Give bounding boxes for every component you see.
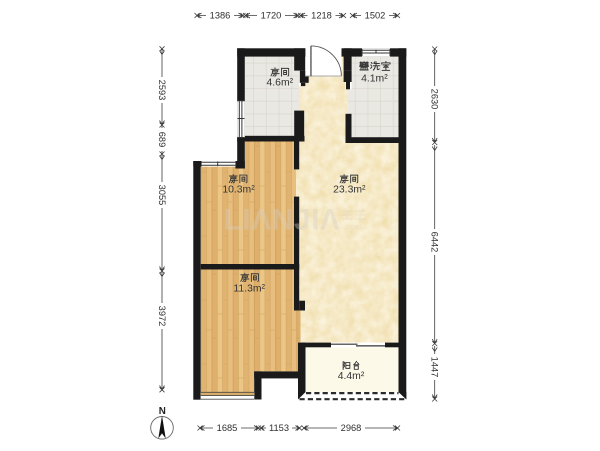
svg-text:4.1m²: 4.1m² [361, 73, 388, 84]
svg-text:N: N [159, 406, 166, 417]
svg-text:23.3m²: 23.3m² [333, 184, 366, 195]
svg-text:3972: 3972 [157, 306, 167, 327]
svg-text:2630: 2630 [430, 89, 440, 110]
svg-text:4.4m²: 4.4m² [338, 371, 365, 382]
svg-text:4.6m²: 4.6m² [267, 78, 294, 89]
svg-text:1720: 1720 [261, 11, 282, 21]
svg-text:1153: 1153 [269, 423, 289, 433]
svg-text:1502: 1502 [365, 11, 386, 21]
svg-text:1386: 1386 [210, 11, 231, 21]
svg-text:11.3m²: 11.3m² [233, 283, 265, 294]
svg-text:6442: 6442 [430, 232, 440, 253]
svg-text:LIΛNJIΛ: LIΛNJIΛ [224, 204, 341, 237]
svg-text:2968: 2968 [341, 423, 362, 433]
svg-text:10.3m²: 10.3m² [222, 185, 255, 196]
svg-text:3055: 3055 [157, 185, 167, 206]
svg-text:1685: 1685 [217, 423, 238, 433]
svg-text:1447: 1447 [430, 357, 440, 378]
svg-text:2593: 2593 [157, 80, 167, 101]
svg-text:1218: 1218 [311, 11, 332, 21]
svg-text:689: 689 [157, 132, 167, 148]
svg-text:.com: .com [345, 222, 361, 231]
